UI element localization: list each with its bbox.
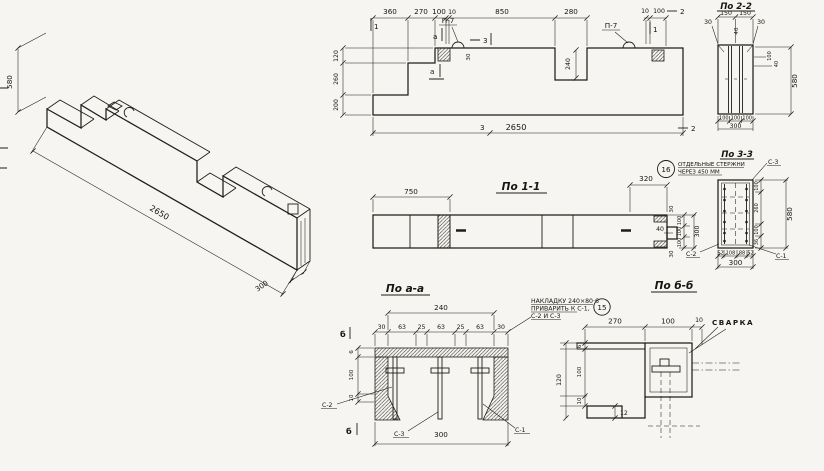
dim-100: 100	[577, 366, 583, 377]
scan-edge-marks	[0, 88, 8, 168]
dim-88: 88	[739, 251, 745, 257]
dim-750: 750	[404, 187, 418, 196]
iso-width-dim: 300	[253, 278, 270, 293]
dim-580: 580	[785, 207, 794, 221]
dim-100: 100	[677, 216, 683, 226]
section-2-mark: 2	[691, 124, 696, 133]
dim-260: 260	[754, 203, 760, 213]
section-a-mark: а	[433, 32, 437, 41]
dim-320: 320	[639, 174, 653, 183]
dim-36: 36	[754, 239, 760, 245]
elevation-outline	[373, 48, 683, 115]
section-a-mark: а	[430, 67, 434, 76]
dim-63: 63	[398, 324, 406, 331]
dim-850: 850	[495, 7, 509, 16]
anchor-plate	[438, 48, 450, 61]
plate-c3	[438, 357, 442, 419]
dim-10: 10	[577, 397, 583, 405]
dim-100: 100	[349, 369, 355, 380]
dim-240: 240	[565, 58, 572, 70]
dim-270: 270	[608, 317, 622, 326]
section-1-1-title: По 1-1	[502, 181, 541, 193]
dim-100: 100	[754, 181, 760, 191]
note16-line2: ЧЕРЕЗ 450 ММ	[678, 170, 720, 176]
dim-30: 30	[497, 324, 505, 331]
mesh-label-c2: С-2	[686, 251, 697, 258]
mesh-label-c3: С-3	[768, 159, 779, 166]
note15-line2: ПРИВАРИТЬ К С-1,	[531, 306, 590, 313]
section-b-mark: б	[340, 329, 346, 339]
section-3-mark: 3	[480, 123, 485, 132]
isometric-view: 580 2650 300	[5, 33, 310, 297]
note-cover-plate: НАКЛАДКУ 240×80·6 ПРИВАРИТЬ К С-1, С-2 И…	[509, 298, 610, 331]
dim-40: 40	[734, 27, 740, 35]
dim-10: 10	[349, 394, 355, 402]
dim-52: 52	[747, 251, 753, 257]
section-b-mark: б	[346, 426, 352, 436]
dim-63: 63	[437, 324, 445, 331]
callout-16-num: 16	[661, 165, 671, 174]
plate-section	[652, 366, 680, 372]
dim-580: 580	[790, 74, 799, 88]
loop-label: П-7	[605, 21, 618, 30]
flange	[375, 348, 508, 357]
dim-100: 100	[677, 238, 683, 248]
weld-label: СВАРКА	[712, 318, 754, 327]
dim-280: 280	[564, 7, 578, 16]
mesh-label-c2: С-2	[322, 402, 333, 409]
dim-52: 52	[717, 251, 723, 257]
dim-150: 150	[739, 10, 751, 17]
anchor-plate	[652, 50, 664, 61]
dim-30: 30	[669, 250, 675, 258]
section-1-mark: 1	[374, 22, 379, 31]
section-a-a: По а-а 240 30 63 25 63 25 63 30 6 100 10…	[321, 283, 530, 447]
loop-label: П-7	[442, 16, 455, 25]
dim-6: 6	[349, 350, 355, 354]
dim-10: 10	[641, 8, 649, 15]
dim-300: 300	[730, 123, 742, 130]
plate-c1	[478, 357, 482, 419]
dim-100: 100	[742, 116, 752, 122]
dim-30: 30	[466, 53, 472, 61]
dim-100: 100	[731, 116, 741, 122]
dim-10: 10	[448, 9, 456, 16]
dim-270: 270	[414, 7, 428, 16]
dim-120: 120	[556, 374, 563, 386]
dim-240: 240	[434, 303, 448, 312]
dim-100: 100	[661, 317, 675, 326]
section-a-a-title: По а-а	[386, 283, 424, 295]
dim-150: 150	[720, 10, 732, 17]
dim-300: 300	[694, 226, 701, 238]
dim-100: 100	[432, 7, 446, 16]
block-outline	[47, 105, 297, 270]
note15-line3: С-2 И С-3	[531, 313, 561, 320]
dim-260: 260	[333, 73, 340, 85]
dim-360: 360	[383, 7, 397, 16]
dim-2650: 2650	[506, 122, 527, 132]
section-2-mark: 2	[680, 7, 685, 16]
section-1-mark: 1	[653, 25, 658, 34]
lifting-loop-icon	[124, 108, 134, 117]
dim-30: 30	[669, 205, 675, 213]
dim-300: 300	[434, 430, 448, 439]
dim-300: 300	[729, 258, 743, 267]
dim-10: 10	[695, 317, 703, 324]
dim-6: 6	[577, 344, 583, 348]
front-elevation: 360 270 100 10 850 280 10 100 120 260 20…	[333, 7, 696, 136]
dim-100: 100	[754, 225, 760, 235]
dim-30: 30	[378, 324, 386, 331]
dim-100: 100	[719, 116, 729, 122]
section-1-1: По 1-1 750 320 30 40 30 100 100 100 300 …	[370, 174, 719, 258]
construction-drawing: 580 2650 300 360 270 100 10 850 280 10 1…	[0, 0, 824, 471]
section-2-2: По 2-2 150 150 30 30 40 100 40 580 100 1…	[704, 2, 799, 131]
dim-40: 40	[774, 61, 780, 67]
section-3-3-outline	[718, 180, 753, 248]
dim-30: 30	[757, 19, 765, 26]
section-2-2-outline	[718, 45, 753, 114]
lifting-loop-icon	[623, 42, 635, 48]
dim-120: 120	[333, 50, 340, 62]
section-b-b-title: По б-б	[655, 280, 694, 292]
dim-108: 108	[726, 251, 736, 257]
note-individual-bars: 16 ОТДЕЛЬНЫЕ СТЕРЖНИ ЧЕРЕЗ 450 ММ	[658, 161, 745, 178]
dim-63: 63	[476, 324, 484, 331]
iso-length-dim: 2650	[148, 203, 171, 222]
dim-200: 200	[333, 99, 340, 111]
callout-15-num: 15	[597, 303, 606, 312]
note16-line1: ОТДЕЛЬНЫЕ СТЕРЖНИ	[678, 162, 745, 168]
right-wall	[483, 357, 508, 420]
dim-25: 25	[457, 324, 465, 331]
end-anchor-plate	[288, 204, 298, 214]
dim-25: 25	[418, 324, 426, 331]
dim-30: 30	[704, 19, 712, 26]
lifting-loop-icon	[262, 187, 272, 196]
dim-100: 100	[653, 8, 665, 15]
mesh-label-c1: С-1	[776, 253, 787, 260]
section-3-3-title: По 3-3	[721, 150, 753, 160]
mesh-label-c3: С-3	[394, 431, 405, 438]
mesh-label-c1: С-1	[515, 427, 526, 434]
note15-line1: НАКЛАДКУ 240×80·6	[531, 298, 599, 305]
dim-40: 40	[656, 226, 664, 233]
dim-12: 12	[620, 410, 628, 417]
weld-leader	[689, 327, 726, 353]
section-3-mark: 3	[483, 36, 488, 45]
iso-height-dim: 580	[5, 75, 14, 89]
dim-100: 100	[767, 51, 773, 61]
lifting-loop-icon	[452, 42, 464, 48]
dim-100: 100	[677, 227, 683, 237]
